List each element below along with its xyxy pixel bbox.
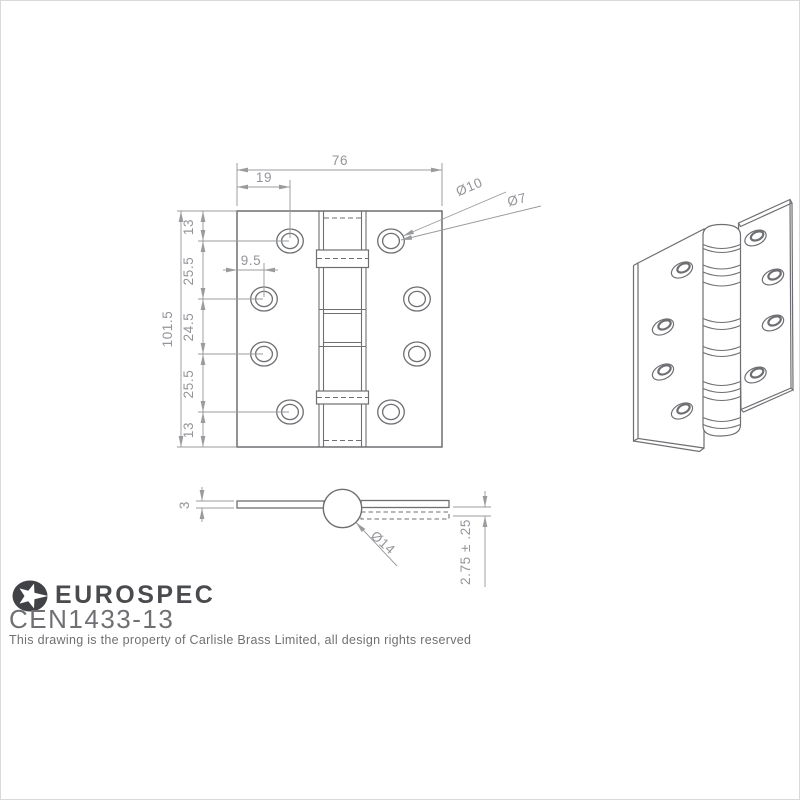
dim-hole-dia-label: Ø7 xyxy=(506,190,528,209)
leaf-section-right xyxy=(361,501,449,508)
dim-thickness-label: 3 xyxy=(177,501,192,509)
ext-lines-gap xyxy=(453,507,491,516)
dim-seg-lower-label: 25.5 xyxy=(181,370,196,399)
iso-right-leaf xyxy=(739,200,792,410)
product-code: CEN1433-13 xyxy=(9,604,174,635)
dim-seg-bottom-label: 13 xyxy=(181,422,196,438)
dim-edge-offset-label: 9.5 xyxy=(241,253,262,268)
copyright-notice: This drawing is the property of Carlisle… xyxy=(9,633,471,647)
dim-seg-top-label: 13 xyxy=(181,219,196,235)
dim-countersink-label: Ø10 xyxy=(454,175,485,199)
leaf-section-left xyxy=(237,501,324,508)
dim-seg-middle-label: 24.5 xyxy=(181,313,196,342)
ext-lines-thickness xyxy=(196,501,234,508)
knuckle-section-circle xyxy=(323,489,361,527)
iso-barrel xyxy=(703,225,741,437)
dim-hole-offset-label: 19 xyxy=(256,170,272,185)
technical-drawing: 76 19 Ø10 Ø7 101.5 13 25.5 24.5 25.5 13 … xyxy=(1,1,799,799)
dim-width-label: 76 xyxy=(332,153,348,168)
dim-height-label: 101.5 xyxy=(160,311,175,348)
dim-gap-label: 2.75 ± .25 xyxy=(458,519,473,585)
section-view xyxy=(237,489,449,527)
isometric-view xyxy=(634,200,794,452)
drawing-sheet: 76 19 Ø10 Ø7 101.5 13 25.5 24.5 25.5 13 … xyxy=(0,0,800,800)
dim-knuckle-dia-label: Ø14 xyxy=(368,528,398,557)
dim-seg-upper-label: 25.5 xyxy=(181,257,196,286)
leaf-section-right-hidden xyxy=(361,512,449,519)
